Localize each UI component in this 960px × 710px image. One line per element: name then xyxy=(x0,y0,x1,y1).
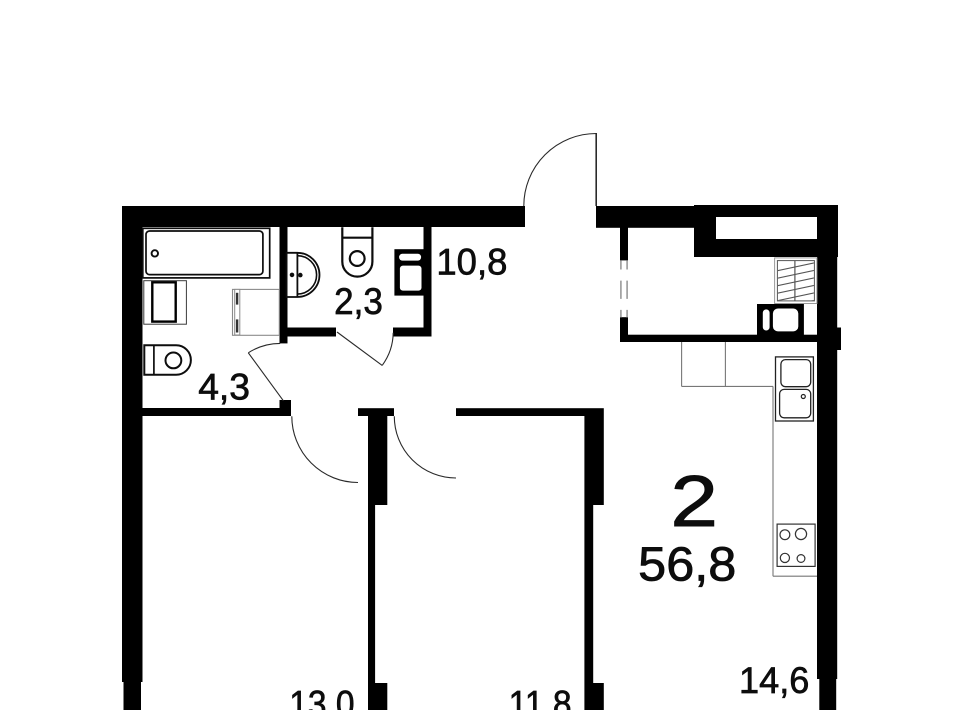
svg-text:14,6: 14,6 xyxy=(739,659,809,701)
svg-text:4,3: 4,3 xyxy=(198,366,250,408)
svg-text:10,8: 10,8 xyxy=(436,240,507,282)
svg-text:56,8: 56,8 xyxy=(638,538,736,592)
svg-text:2: 2 xyxy=(670,461,718,542)
svg-text:2,3: 2,3 xyxy=(334,280,383,322)
svg-text:13,0: 13,0 xyxy=(289,683,354,710)
svg-text:11,8: 11,8 xyxy=(509,683,572,710)
